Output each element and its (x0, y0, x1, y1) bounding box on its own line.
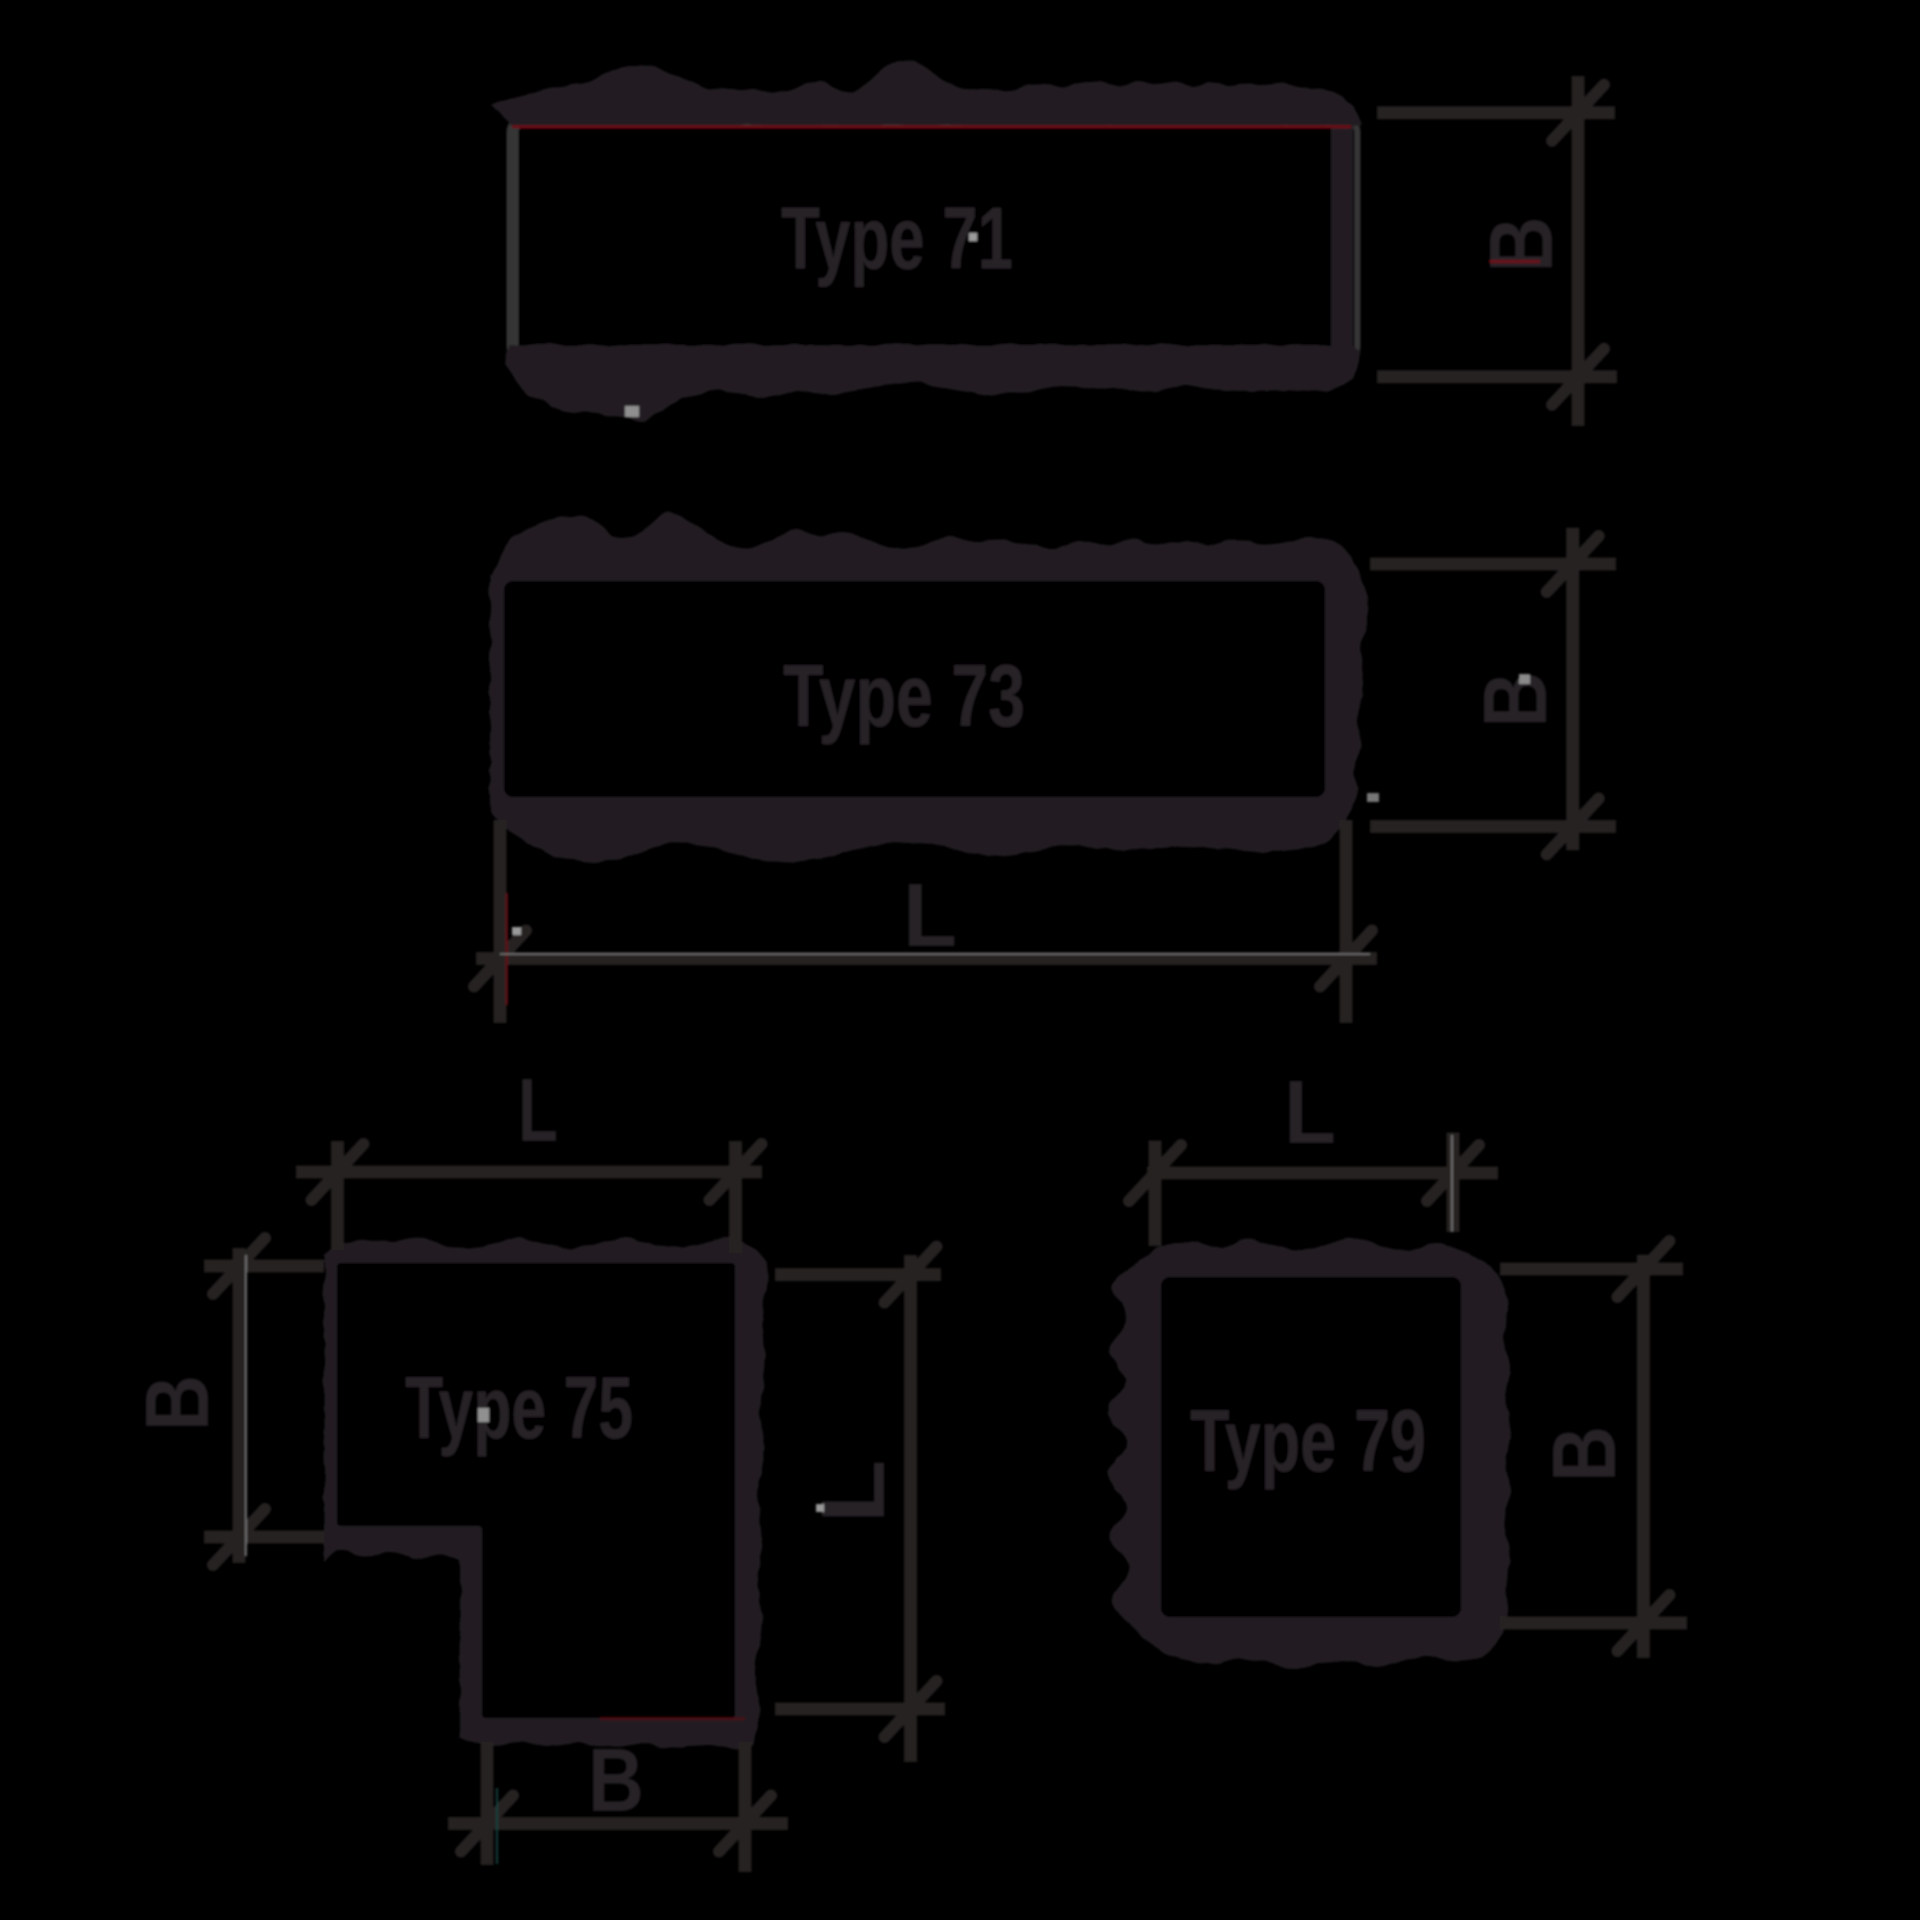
svg-text:B: B (128, 1375, 228, 1431)
svg-text:B: B (1535, 1426, 1635, 1482)
svg-text:B: B (588, 1731, 644, 1831)
svg-text:Type 73: Type 73 (783, 646, 1025, 745)
svg-text:L: L (518, 1061, 558, 1161)
svg-text:Type 71: Type 71 (781, 189, 1013, 288)
svg-text:Type 79: Type 79 (1190, 1391, 1426, 1490)
svg-text:B: B (1472, 217, 1572, 273)
svg-text:Type 75: Type 75 (405, 1358, 633, 1457)
svg-text:L: L (804, 1460, 904, 1524)
svg-text:L: L (1284, 1063, 1336, 1163)
svg-text:B: B (1466, 672, 1566, 728)
svg-text:L: L (903, 866, 957, 966)
